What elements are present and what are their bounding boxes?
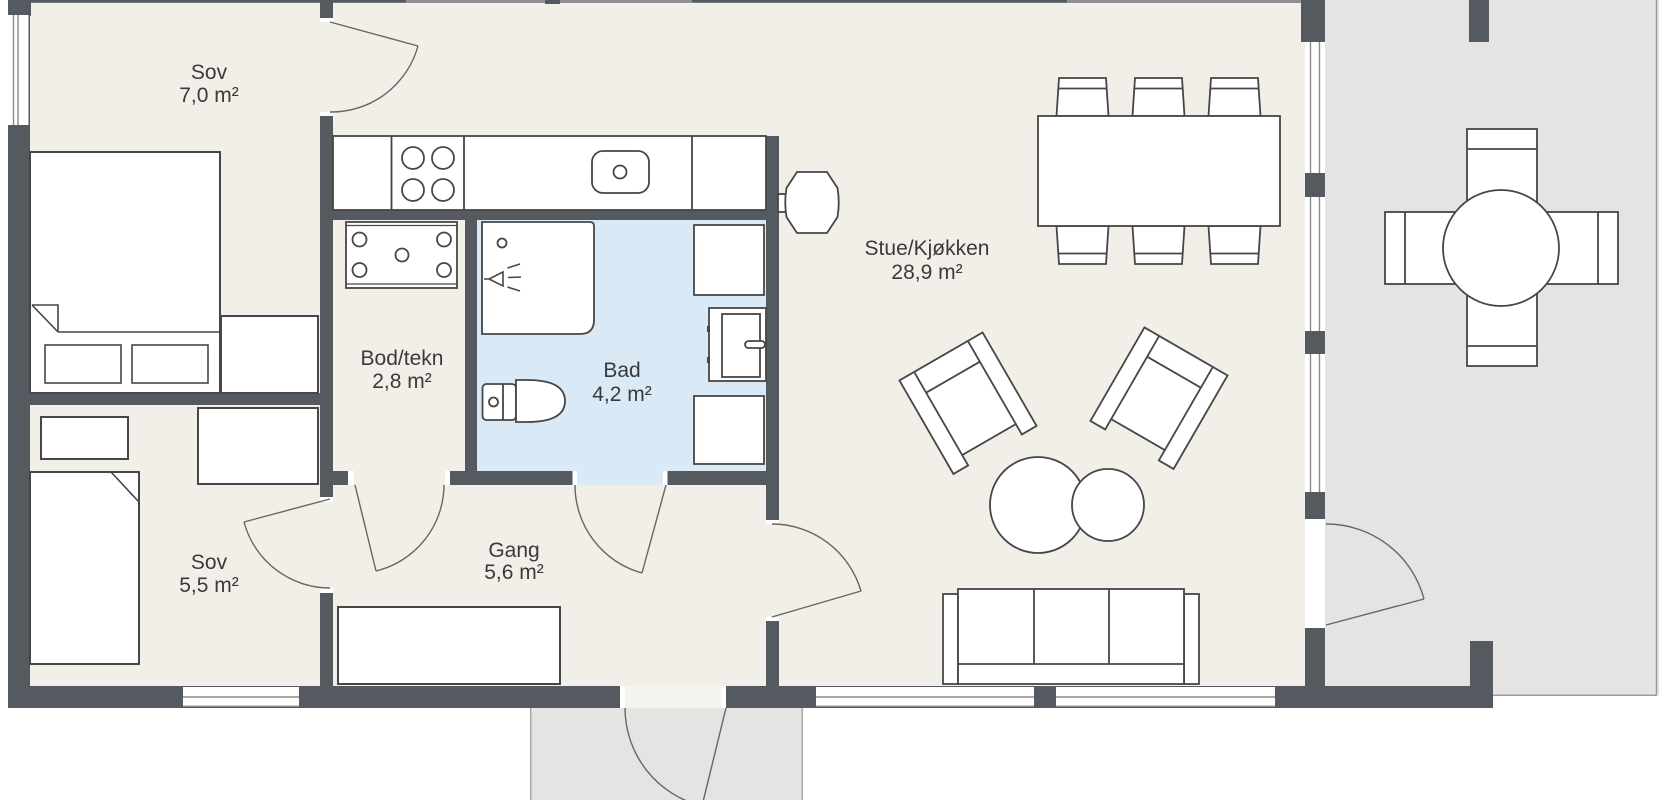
- svg-text:5,6 m²: 5,6 m²: [484, 561, 544, 584]
- svg-text:4,2 m²: 4,2 m²: [592, 383, 652, 406]
- svg-text:Stue/Kjøkken: Stue/Kjøkken: [865, 237, 990, 260]
- svg-text:7,0 m²: 7,0 m²: [179, 84, 239, 107]
- svg-text:28,9 m²: 28,9 m²: [891, 261, 962, 284]
- svg-text:Bad: Bad: [603, 359, 640, 382]
- svg-text:Sov: Sov: [191, 551, 228, 574]
- svg-text:Gang: Gang: [488, 539, 539, 562]
- svg-text:2,8 m²: 2,8 m²: [372, 370, 432, 393]
- svg-text:Sov: Sov: [191, 61, 228, 84]
- svg-text:5,5 m²: 5,5 m²: [179, 574, 239, 597]
- svg-text:Bod/tekn: Bod/tekn: [361, 347, 444, 370]
